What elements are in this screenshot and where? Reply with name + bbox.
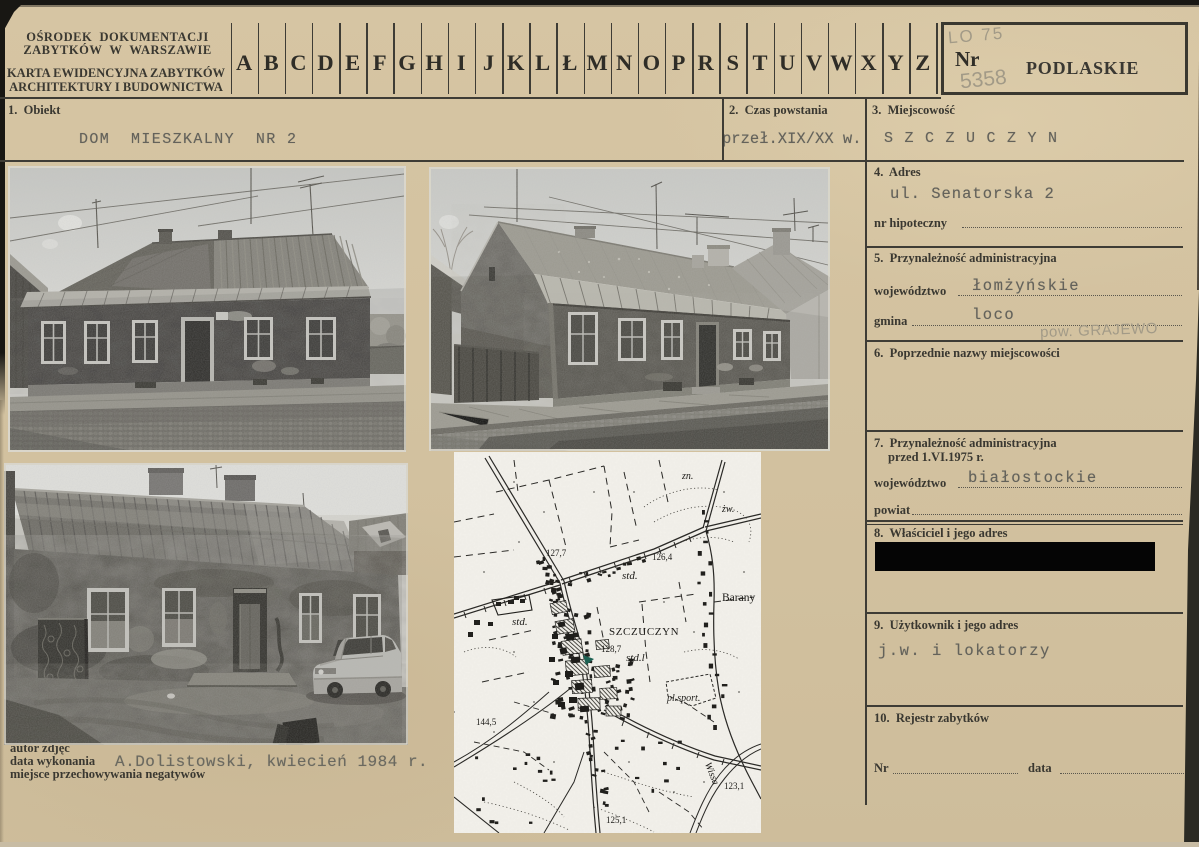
svg-text:std.l: std.l [626, 652, 645, 664]
svg-text:144,5: 144,5 [476, 717, 497, 727]
svg-text:127,7: 127,7 [546, 548, 567, 558]
svg-text:123,1: 123,1 [724, 781, 744, 791]
svg-text:std.: std. [512, 616, 528, 628]
svg-text:zn.: zn. [681, 471, 693, 482]
svg-text:pl.sport.: pl.sport. [666, 693, 700, 704]
svg-text:żw.: żw. [721, 504, 734, 515]
svg-text:std.: std. [622, 570, 638, 582]
svg-text:128,7: 128,7 [601, 644, 622, 654]
svg-text:126,4: 126,4 [652, 552, 673, 562]
svg-text:Barany: Barany [722, 592, 755, 604]
svg-text:125,1: 125,1 [606, 815, 626, 825]
svg-text:SZCZUCZYN: SZCZUCZYN [609, 626, 679, 638]
